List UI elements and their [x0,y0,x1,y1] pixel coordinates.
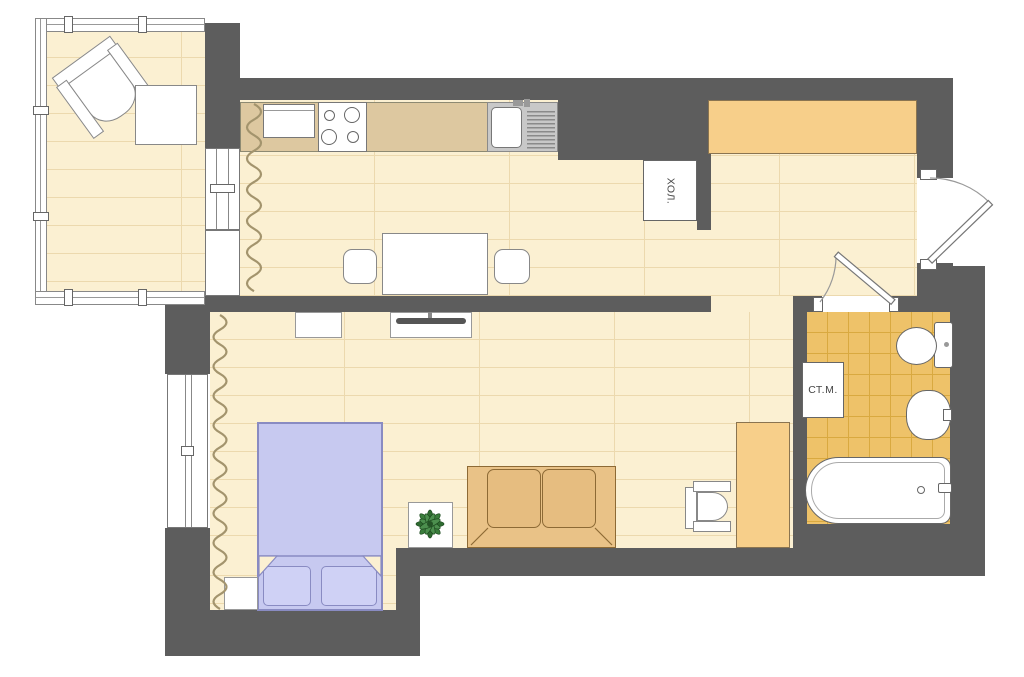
tv-shelf [295,312,342,338]
tv [396,318,466,324]
wall-bottom-right [396,548,985,576]
entrance-door-jamb [920,169,937,180]
stove-burner [321,129,337,145]
sink-drainboard [527,111,555,149]
nightstand [224,577,258,610]
balcony-glazing-bottom [35,291,205,305]
bathroom-door-jamb [889,297,899,312]
wall-balcony-column [205,23,240,148]
desk [736,422,790,548]
toilet-button [944,342,949,347]
stove-burner [347,131,359,143]
stove-burner [344,107,360,123]
balcony-glazing-left [35,18,47,305]
hall-connector-floor [711,296,793,312]
wall-top [237,78,953,100]
glazing-mullion [64,16,73,33]
balcony-table [135,85,197,145]
bed-pillow [263,566,311,606]
entrance-door-jamb [920,259,937,270]
hallway-wardrobe [708,100,917,154]
washing-machine-label: СТ.М. [808,384,838,396]
balcony-block-window-mullion [210,184,235,193]
bathroom-sink-faucet [943,409,952,421]
dining-table [382,233,488,295]
wall-bathroom-right [950,266,985,576]
sofa-cushion [542,469,596,528]
kitchen-tall-cabinet [558,100,697,160]
bed-pillow [321,566,377,606]
glazing-mullion [33,106,49,115]
balcony-block-door [205,230,240,296]
office-chair-armrest [693,481,731,492]
sink-basin [491,107,522,148]
wall-partition-kitchen-living [165,296,711,312]
plant-pot [408,502,453,548]
balcony-glazing-top [35,18,205,32]
bathtub-drain [917,486,925,494]
entrance-door-opening [917,178,953,262]
floor-plan: ХОЛ. СТ.М. [0,0,1024,677]
wall-entry-corner [917,263,953,312]
washing-machine: СТ.М. [802,362,844,418]
glazing-mullion [33,212,49,221]
wall-bathroom-left [793,296,807,548]
wall-bedroom-left-upper [165,296,210,374]
office-chair-armrest [693,521,731,532]
fridge-label: ХОЛ. [664,177,676,204]
wall-bedroom-left-lower [165,528,210,612]
wall-bottom-left [165,610,420,656]
kitchen-faucet [513,100,523,106]
toilet-bowl [896,327,937,365]
glazing-mullion [64,289,73,306]
sofa-cushion [487,469,541,528]
wall-bathroom-bottom [793,524,953,548]
kitchen-faucet-handle [524,99,530,107]
office-chair-seat [697,492,728,521]
stove-burner [324,110,335,121]
bathtub-faucet [938,483,952,493]
dining-chair [343,249,377,284]
bedroom-window-mullion [181,446,194,456]
glazing-mullion [138,16,147,33]
glazing-mullion [138,289,147,306]
wall-right-top-corner [917,100,953,178]
dining-chair [494,249,530,284]
fridge: ХОЛ. [643,160,697,221]
bathroom-door-jamb [813,297,823,312]
oven-appliance [263,104,315,138]
